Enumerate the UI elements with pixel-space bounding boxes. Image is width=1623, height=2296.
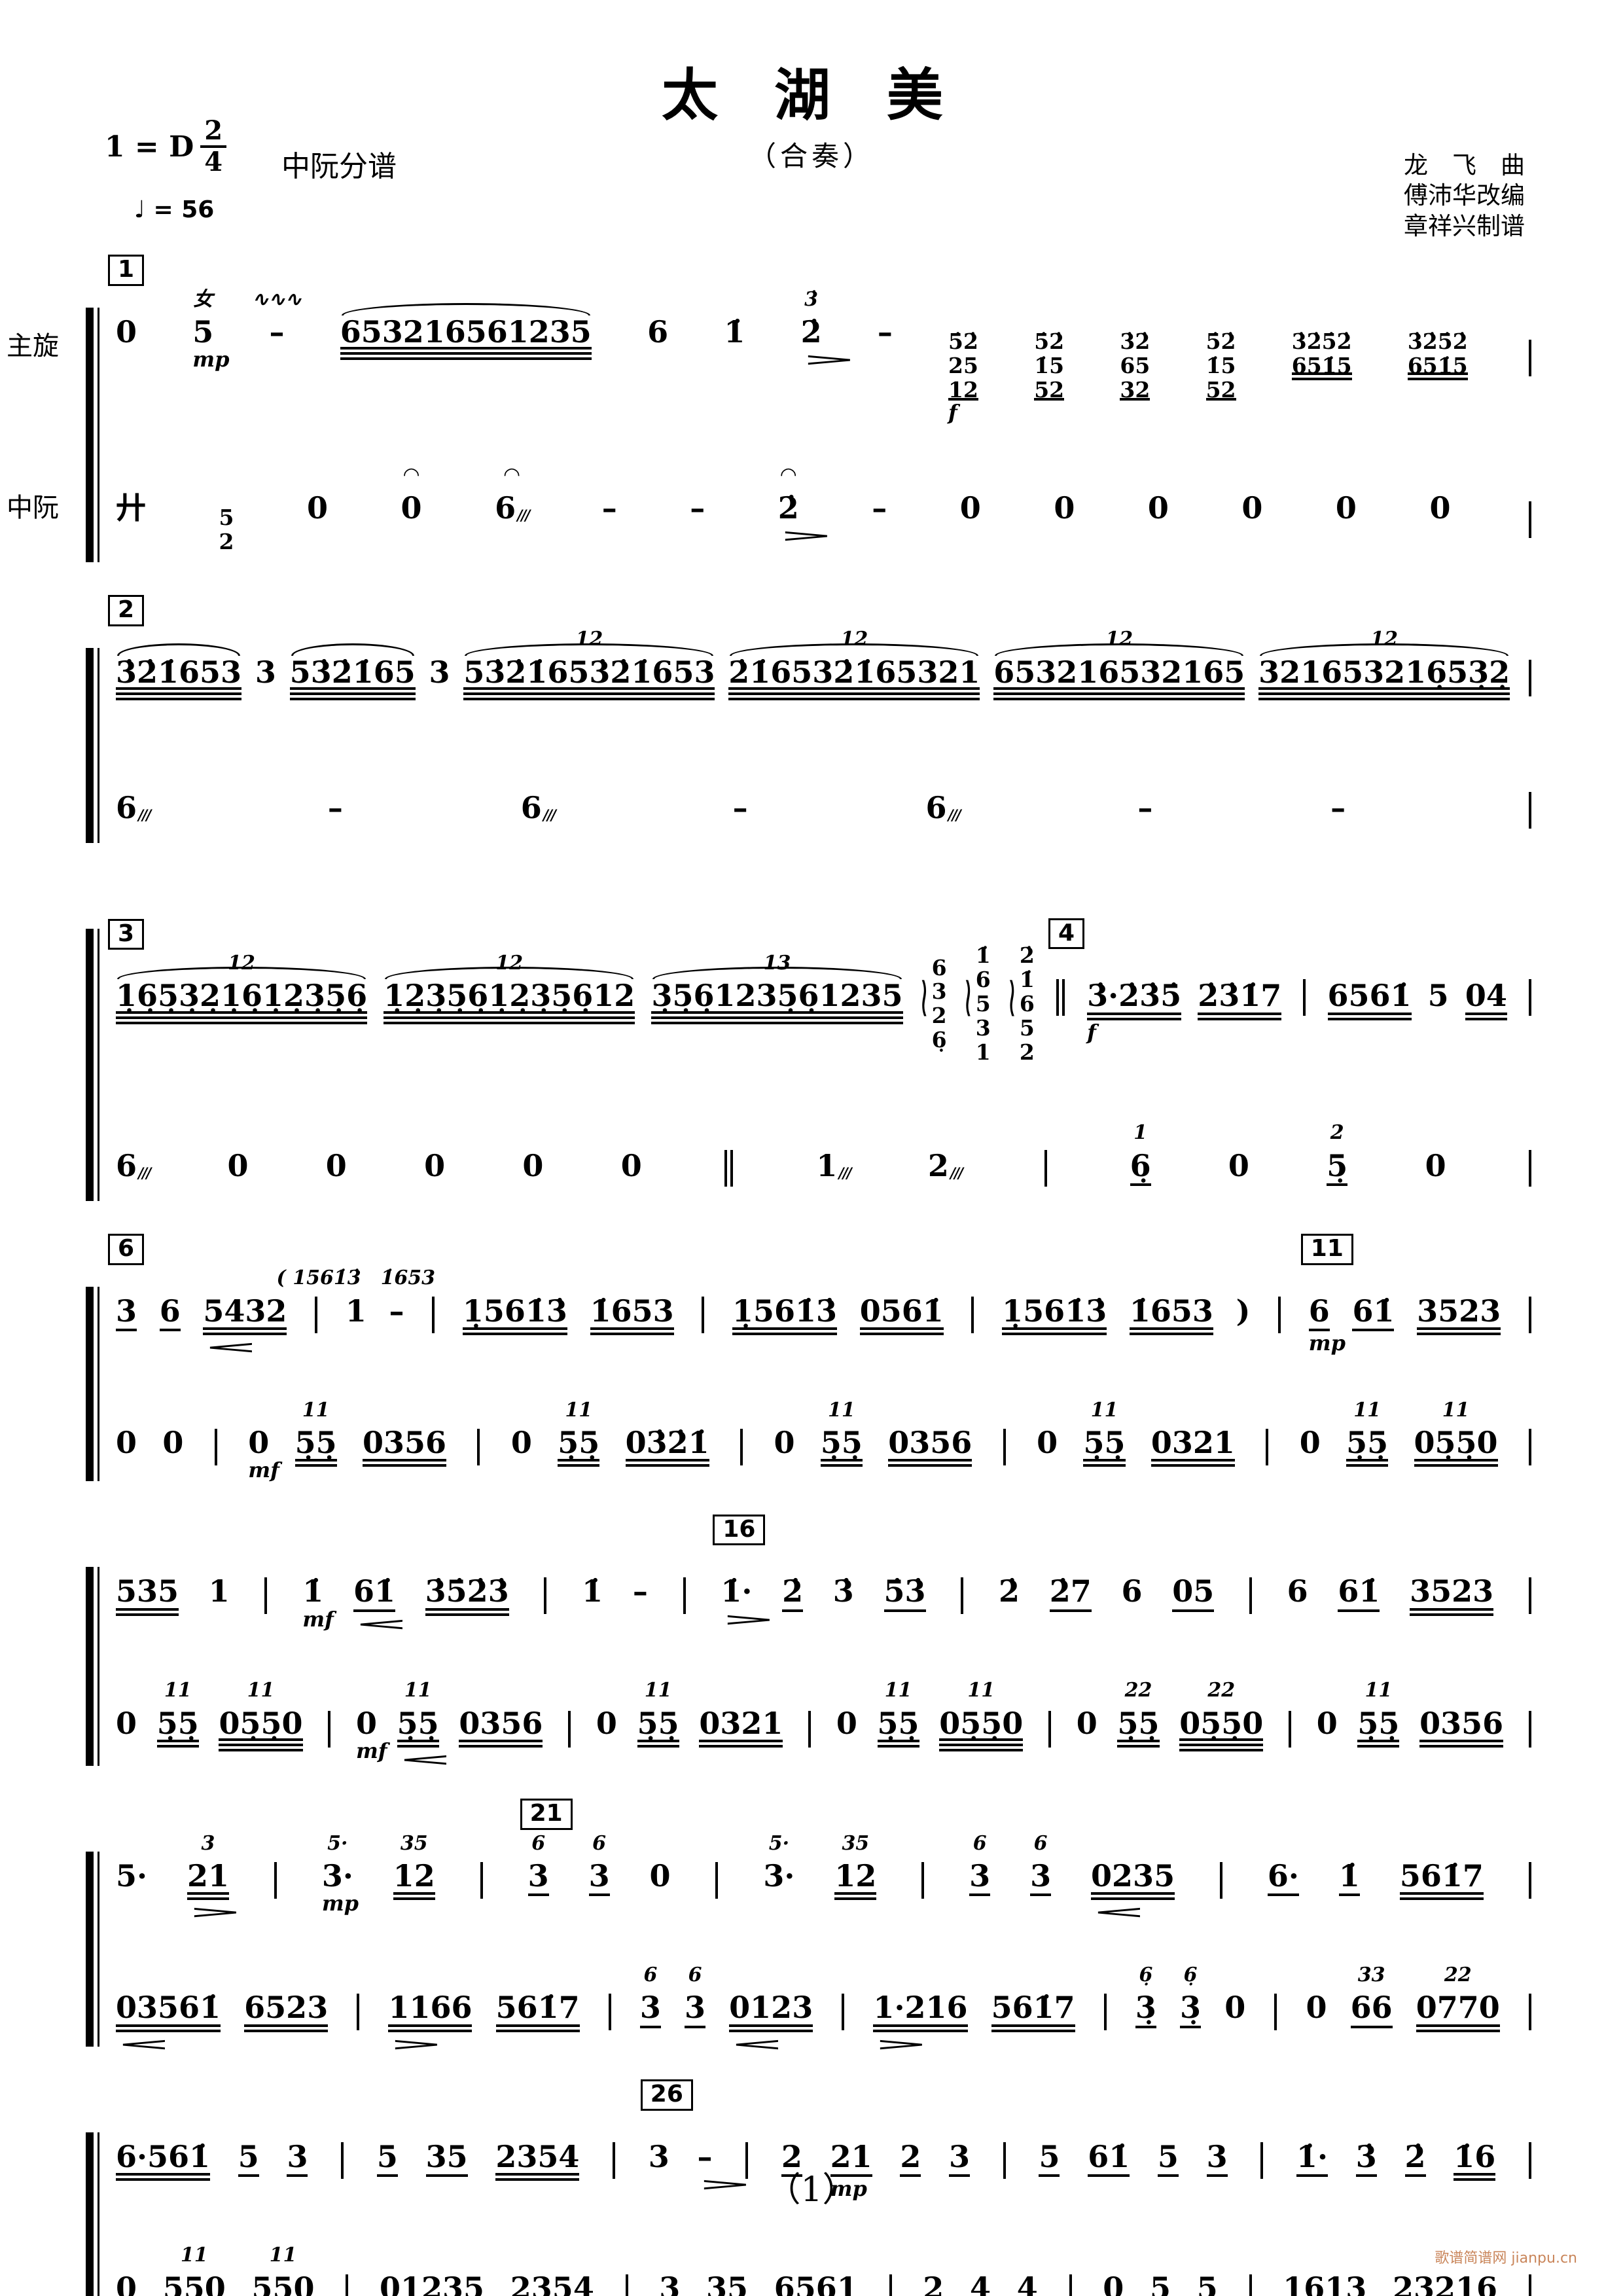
note-text: 3· bbox=[763, 1860, 794, 1892]
credit-line: 章祥兴制谱 bbox=[1404, 211, 1525, 242]
note-token: 1 bbox=[209, 1575, 230, 1607]
note-token: 6 bbox=[160, 1295, 181, 1331]
tremolo-icon: /// bbox=[543, 808, 555, 823]
decrescendo-icon: > bbox=[388, 2036, 444, 2053]
credit-line: 龙 飞 曲 bbox=[1404, 151, 1525, 181]
note-text: 3̣ bbox=[1135, 1992, 1156, 2023]
above-annotation: 12 bbox=[576, 629, 603, 650]
note-token: 1̣2̣3̣5̣6̣1̣2̣3̣5̣6̣1212 bbox=[383, 980, 635, 1024]
chord-note: 3̇2̇ bbox=[1120, 330, 1150, 354]
key-signature: 1 = D 2 4 bbox=[105, 118, 226, 175]
chord-stack: 5̇2̇2512 bbox=[948, 330, 978, 403]
note-token: 53̇2̇1̇65 bbox=[290, 656, 416, 700]
note-text: 2̇ bbox=[782, 1575, 803, 1607]
note-token: 5̇2̇1̇552 bbox=[1206, 323, 1236, 401]
note-text: – bbox=[690, 492, 705, 524]
note-text: 3 bbox=[589, 1860, 610, 1892]
note-token: 廾 bbox=[116, 492, 146, 524]
stave-line: 05̣5̣0115̣5̣01101̣2352354335̣656̣1>2mp4̣… bbox=[108, 2215, 1544, 2296]
chord-stack: 3̇2̇5̇2̇651̇5 bbox=[1292, 330, 1352, 378]
note-token: 5̣5̣11 bbox=[637, 1708, 679, 1748]
note-token: – bbox=[389, 1295, 404, 1327]
note-text: – bbox=[633, 1575, 648, 1607]
note-token: 5̣5̣011 bbox=[163, 2272, 226, 2296]
note-text: 0 bbox=[511, 1427, 532, 1458]
note-text: 53̇2̇1̇65 bbox=[290, 656, 416, 688]
note-text: – bbox=[733, 792, 748, 823]
note-token: 0 bbox=[1077, 1708, 1097, 1739]
note-text: 0 bbox=[522, 1150, 543, 1181]
note-text: 3523 bbox=[1417, 1295, 1501, 1327]
note-text: 3̇2̇1̇653 bbox=[116, 656, 241, 688]
stave-line: 主旋015女mp–∿∿∿65321656123561̇2̇3̇>–5̇2̇251… bbox=[108, 259, 1544, 435]
stave-label: 主旋 bbox=[7, 332, 59, 360]
note-token: 213> bbox=[187, 1860, 229, 1900]
dynamics-marking: > bbox=[873, 2034, 891, 2056]
above-annotation: ∿∿∿ bbox=[252, 289, 301, 310]
note-token: 04 bbox=[1465, 980, 1507, 1020]
note-text: 5̇3̇ bbox=[884, 1575, 926, 1607]
note-token: – bbox=[633, 1575, 648, 1607]
note-text: 0321 bbox=[1151, 1427, 1235, 1458]
note-token: 1̇ bbox=[1339, 1860, 1360, 1896]
above-annotation: 5· bbox=[769, 1833, 789, 1854]
note-token: 0235< bbox=[1091, 1860, 1175, 1900]
above-annotation: 22 bbox=[1125, 1680, 1152, 1701]
note-text: 21 bbox=[187, 1860, 229, 1892]
note-token: 561̇7 bbox=[991, 1992, 1075, 2032]
tremolo-icon: /// bbox=[517, 509, 529, 524]
note-token: 2̇1̇6532̇1̇6532112 bbox=[728, 656, 980, 700]
note-text: – bbox=[270, 316, 285, 348]
note-token: 36 bbox=[969, 1860, 990, 1896]
note-token: ≀1̇6531 bbox=[963, 937, 991, 1058]
barline bbox=[1529, 340, 1531, 376]
sheet-music-page: 太 湖 美 （合奏） 1 = D 2 4 ♩ = 56 中阮分谱 龙 飞 曲傅沛… bbox=[0, 0, 1623, 2296]
note-text: 0 bbox=[960, 492, 981, 524]
barline bbox=[264, 1577, 267, 1614]
barline bbox=[1044, 1150, 1047, 1187]
note-token: 1235 bbox=[834, 1860, 876, 1900]
dynamics-marking: < bbox=[353, 1613, 371, 1636]
above-annotation: 11 bbox=[828, 1400, 855, 1421]
barline bbox=[1529, 1577, 1531, 1614]
barline bbox=[1529, 2274, 1531, 2296]
note-token: 321653216̣53̣2̣12 bbox=[1258, 656, 1510, 700]
above-annotation: 11 bbox=[270, 2245, 297, 2266]
note-text: 5 bbox=[1197, 2272, 1218, 2296]
dynamics-marking: mf bbox=[302, 1609, 334, 1631]
barline bbox=[480, 1862, 483, 1899]
note-text: 3 bbox=[255, 656, 276, 688]
note-token: 0561̇ bbox=[860, 1295, 944, 1335]
chord-stack: 52 bbox=[219, 506, 234, 554]
note-token: 0 bbox=[307, 492, 328, 524]
note-text: 6 bbox=[160, 1295, 181, 1327]
note-text: 1166 bbox=[388, 1992, 472, 2023]
above-annotation: 11 bbox=[967, 1680, 995, 1701]
chord-note: 6 bbox=[976, 968, 991, 992]
note-token: 2̇3̇> bbox=[801, 316, 822, 348]
barline bbox=[1278, 1297, 1281, 1333]
note-token: 3·5· bbox=[763, 1860, 794, 1892]
crescendo-icon: < bbox=[116, 2036, 172, 2053]
chord-note: 25 bbox=[948, 354, 978, 378]
tremolo-icon: /// bbox=[950, 1166, 962, 1181]
note-text: 0 bbox=[1037, 1427, 1058, 1458]
note-token: 0 bbox=[1306, 1992, 1327, 2023]
note-text: 6 bbox=[521, 792, 542, 823]
decrescendo-icon: > bbox=[187, 1904, 243, 1922]
decrescendo-icon: > bbox=[801, 351, 857, 369]
key-signature-text: 1 = D bbox=[105, 130, 194, 164]
note-token: 36 bbox=[685, 1992, 705, 2028]
note-token: 0mf bbox=[356, 1708, 377, 1739]
note-token: 2̇ bbox=[999, 1575, 1020, 1607]
stave-line: 1̣6̣5̣3̣2̣1̣6̣1̣2̣3̣5̣6̣1231̣2̣3̣5̣6̣1̣2… bbox=[108, 880, 1544, 1092]
note-token: 1̇ bbox=[582, 1575, 603, 1607]
note-token: 0 bbox=[1425, 1150, 1446, 1181]
chord-note: 52 bbox=[1206, 378, 1236, 403]
note-token: 5 bbox=[1197, 2272, 1218, 2296]
barline bbox=[1266, 1429, 1268, 1465]
chord-note: 1̇ bbox=[1020, 968, 1035, 992]
note-token: 65321653216512 bbox=[993, 656, 1245, 700]
note-token: 23216̣ bbox=[1393, 2272, 1497, 2296]
note-token: 6̣1 bbox=[1130, 1150, 1151, 1186]
note-text: 5̣5̣ bbox=[1346, 1427, 1388, 1458]
crescendo-icon: < bbox=[353, 1615, 410, 1633]
note-text: 561̇7 bbox=[991, 1992, 1075, 2023]
note-token: – bbox=[1137, 792, 1152, 823]
barline bbox=[961, 1577, 963, 1614]
note-token: 0◠ bbox=[401, 492, 422, 524]
note-text: 66 bbox=[1351, 1992, 1393, 2023]
note-token: 0 bbox=[1228, 1150, 1249, 1181]
note-text: 5̣5̣ bbox=[637, 1708, 679, 1739]
note-token: 0321 bbox=[699, 1708, 783, 1748]
note-text: 1̣561̇3̇ bbox=[1002, 1295, 1107, 1327]
chord-note: 3 bbox=[976, 1016, 991, 1041]
decrescendo-icon: > bbox=[721, 1611, 777, 1628]
dynamics-marking: mp bbox=[1309, 1333, 1346, 1355]
note-token: 3̇·2̇3̇5̇f bbox=[1087, 980, 1181, 1020]
note-token: 0mf bbox=[248, 1427, 269, 1458]
note-token: 5̇3̇ bbox=[884, 1575, 926, 1611]
note-text: 2354 bbox=[510, 2272, 594, 2296]
note-token: 0 bbox=[1336, 492, 1357, 524]
dynamics-marking: mp bbox=[322, 1893, 359, 1915]
note-token: 0 bbox=[227, 1150, 248, 1181]
note-token: 2̇7 bbox=[1050, 1575, 1092, 1611]
note-text: 3 bbox=[1030, 1860, 1051, 1892]
chord-note: 5 bbox=[219, 506, 234, 530]
note-text: 1̇653 bbox=[590, 1295, 674, 1327]
note-token: 5̣5̣11 bbox=[821, 1427, 863, 1467]
part-label: 中阮分谱 bbox=[281, 143, 397, 185]
note-token: 3̣6̣ bbox=[1180, 1992, 1201, 2028]
crescendo-icon: < bbox=[397, 1751, 454, 1768]
barline: 4 bbox=[1056, 979, 1059, 1016]
barline bbox=[357, 1994, 359, 2030]
note-token: 6/// bbox=[116, 1150, 150, 1181]
note-text: 04 bbox=[1465, 980, 1507, 1011]
note-text: 5̣5̣ bbox=[397, 1708, 439, 1739]
dynamics-marking: > bbox=[801, 349, 819, 371]
note-token: 61̇ bbox=[1338, 1575, 1380, 1611]
chord-note: 2 bbox=[1020, 1041, 1035, 1065]
above-annotation: 11 bbox=[885, 1680, 912, 1701]
note-text: 5 bbox=[1150, 2272, 1171, 2296]
note-text: 6 bbox=[1309, 1295, 1330, 1327]
note-token: 5 bbox=[1428, 980, 1449, 1011]
tremolo-icon: /// bbox=[138, 1166, 150, 1181]
note-text: 12 bbox=[834, 1860, 876, 1892]
dynamics-marking: f bbox=[948, 402, 957, 424]
chord-stack: 3̇2̇5̇2̇651̇5 bbox=[1408, 330, 1468, 378]
note-token: 35̣ bbox=[706, 2272, 748, 2296]
note-token: 05̣5̣011 bbox=[219, 1708, 302, 1751]
note-token: 0 bbox=[1241, 492, 1262, 524]
dynamics-marking: < bbox=[1091, 1901, 1109, 1924]
note-token: 077022 bbox=[1416, 1992, 1500, 2032]
barline bbox=[1048, 1711, 1051, 1748]
note-token: 5̇2̇1̇552 bbox=[1034, 323, 1064, 401]
note-text: 0356 bbox=[363, 1427, 446, 1458]
note-text: 0 bbox=[1425, 1150, 1446, 1181]
rehearsal-mark: 1 bbox=[108, 255, 144, 286]
note-text: 3 bbox=[429, 656, 450, 688]
note-text: 5̣5̣ bbox=[1117, 1708, 1159, 1739]
chord-note: 6 bbox=[1020, 992, 1035, 1016]
note-token: 03̇2̇1̇ bbox=[626, 1427, 709, 1467]
note-token: 561̇7 bbox=[1400, 1860, 1484, 1900]
score-subtitle: （合奏） bbox=[0, 134, 1623, 174]
note-text: 0 bbox=[401, 492, 422, 524]
above-annotation: ◠ bbox=[402, 465, 419, 486]
time-signature: 2 4 bbox=[200, 118, 226, 175]
note-token: 6 bbox=[1287, 1575, 1308, 1607]
chord-note: 3̇2̇5̇2̇ bbox=[1408, 330, 1468, 354]
note-token: 0356 bbox=[363, 1427, 446, 1467]
note-token: 3523 bbox=[1410, 1575, 1493, 1615]
note-token: 0 bbox=[1148, 492, 1169, 524]
barline bbox=[1104, 1994, 1107, 2030]
note-token: – bbox=[1330, 792, 1346, 823]
note-text: 2̇7 bbox=[1050, 1575, 1092, 1607]
chord-note: 3̇2̇5̇2̇ bbox=[1292, 330, 1352, 354]
note-text: 1̇ bbox=[724, 316, 745, 348]
note-text: 0 bbox=[1224, 1992, 1245, 2023]
note-token: 1̇·>16 bbox=[721, 1575, 752, 1607]
note-token: 1̣6̣5̣3̣2̣1̣6̣1̣2̣3̣5̣6̣123 bbox=[116, 980, 367, 1024]
chord-note: 5̇2̇ bbox=[948, 330, 978, 354]
barline bbox=[432, 1297, 435, 1333]
stave-label: 中阮 bbox=[7, 494, 59, 522]
note-token: 1̇653 bbox=[590, 1295, 674, 1335]
note-text: 0561̇ bbox=[860, 1295, 944, 1327]
score-system: 3̇2̇1̇6532353̇2̇1̇65353̇2̇1̇653̇2̇1̇6531… bbox=[108, 599, 1544, 863]
note-text: 0 bbox=[1241, 492, 1262, 524]
above-annotation: 35 bbox=[842, 1833, 869, 1854]
note-text: 0235 bbox=[1091, 1860, 1175, 1892]
note-text: 1̣2̣3̣5̣6̣1̣2̣3̣5̣6̣12 bbox=[383, 980, 635, 1011]
note-text: 2̇ bbox=[999, 1575, 1020, 1607]
note-token: 2̇◠> bbox=[778, 492, 799, 524]
arpeggio-icon: ≀ bbox=[919, 967, 929, 1028]
note-text: 0 bbox=[1429, 492, 1450, 524]
barline bbox=[328, 1711, 330, 1748]
above-annotation: 12 bbox=[1370, 629, 1398, 650]
note-text: 1̣561̇3̇ bbox=[463, 1295, 567, 1327]
note-text: 1̇ bbox=[302, 1575, 323, 1607]
note-token: 1̣561̇3̇ bbox=[732, 1295, 837, 1335]
note-text: 0 bbox=[1300, 1427, 1321, 1458]
note-text: 321653216̣53̣2̣ bbox=[1258, 656, 1510, 688]
note-text: 0 bbox=[326, 1150, 347, 1181]
note-token: 4̣ bbox=[1017, 2272, 1038, 2296]
note-token: 01 bbox=[116, 316, 137, 348]
note-token: 6561̇ bbox=[1328, 980, 1412, 1020]
note-token: 3̇2̇6532 bbox=[1120, 323, 1150, 401]
note-token: 5̣5̣11 bbox=[1083, 1427, 1125, 1467]
note-token: 6 bbox=[1121, 1575, 1142, 1607]
note-token: 5̣5̣11 bbox=[157, 1708, 199, 1748]
above-annotation: 5· bbox=[327, 1833, 348, 1854]
note-token: 0 bbox=[650, 1860, 671, 1892]
note-text: 2 bbox=[923, 2272, 944, 2296]
note-token: 1166> bbox=[388, 1992, 472, 2032]
note-token: 2mp bbox=[923, 2272, 944, 2296]
chord-note: 3 bbox=[932, 980, 947, 1004]
note-text: 35̣ bbox=[706, 2272, 748, 2296]
note-text: 0 bbox=[621, 1150, 642, 1181]
stave-line: 5·213>3·5·mp123536213603·5·123536360235<… bbox=[108, 1803, 1544, 1934]
note-token: 6633 bbox=[1351, 1992, 1393, 2028]
note-token: 0356 bbox=[1419, 1708, 1503, 1748]
rehearsal-mark: 6 bbox=[108, 1234, 144, 1265]
note-token: 0 bbox=[424, 1150, 445, 1181]
arpeggio-icon: ≀ bbox=[963, 967, 973, 1028]
watermark: 歌谱简谱网 jianpu.cn bbox=[1435, 2246, 1577, 2267]
note-text: 05̣5̣0 bbox=[939, 1708, 1023, 1739]
note-text: 0 bbox=[1077, 1708, 1097, 1739]
above-annotation: 6̣ bbox=[1184, 1965, 1198, 1986]
above-annotation: 35 bbox=[401, 1833, 428, 1854]
dynamics-marking: > bbox=[388, 2034, 406, 2056]
above-annotation: 6 bbox=[531, 1833, 545, 1854]
note-token: 61̇ bbox=[1352, 1295, 1394, 1331]
dynamics-marking: < bbox=[397, 1749, 415, 1771]
note-token: 6/// bbox=[925, 792, 959, 823]
note-text: 535 bbox=[116, 1575, 179, 1607]
chord-note: 52 bbox=[1034, 378, 1064, 403]
score-body: 主旋015女mp–∿∿∿65321656123561̇2̇3̇>–5̇2̇251… bbox=[0, 252, 1623, 2296]
credit-line: 傅沛华改编 bbox=[1404, 181, 1525, 211]
note-text: 6 bbox=[647, 316, 668, 348]
note-token: 1̣561̇3̇ bbox=[1002, 1295, 1107, 1335]
note-text: 4̣ bbox=[1017, 2272, 1038, 2296]
note-token: 0 bbox=[1103, 2272, 1124, 2296]
note-text: 4̣ bbox=[970, 2272, 991, 2296]
note-text: 5̣5̣0 bbox=[163, 2272, 226, 2296]
above-annotation: 11 bbox=[645, 1680, 672, 1701]
barline bbox=[1529, 660, 1531, 696]
rehearsal-mark: 3 bbox=[108, 919, 144, 950]
note-text: 05̣5̣0 bbox=[219, 1708, 302, 1739]
chord-note: 651̇5 bbox=[1292, 354, 1352, 378]
note-token: 0 bbox=[774, 1427, 794, 1458]
barline bbox=[808, 1711, 811, 1748]
note-text: 3 bbox=[116, 1295, 137, 1327]
note-token: 6mp11 bbox=[1309, 1295, 1330, 1331]
above-annotation: 6 bbox=[643, 1965, 657, 1986]
time-signature-numerator: 2 bbox=[200, 118, 226, 148]
chord-stack: 5̇2̇1̇552 bbox=[1034, 330, 1064, 403]
note-text: 0 bbox=[116, 1427, 137, 1458]
tremolo-icon: /// bbox=[138, 808, 150, 823]
note-text: 53̇2̇1̇653̇2̇1̇653 bbox=[463, 656, 715, 688]
above-annotation: 11 bbox=[1353, 1400, 1381, 1421]
note-text: – bbox=[878, 316, 893, 348]
page-title: 太 湖 美 bbox=[0, 49, 1623, 131]
note-text: 0 bbox=[1336, 492, 1357, 524]
score-system: 53511̇mf61̇<3̇5̇2̇3̇1̇–1̇·>162̇3̇5̇3̇2̇2… bbox=[108, 1518, 1544, 1785]
note-token: 0 bbox=[836, 1708, 857, 1739]
above-annotation: 6 bbox=[1034, 1833, 1048, 1854]
tremolo-icon: /// bbox=[948, 808, 959, 823]
chord-stack: 3̇2̇6532 bbox=[1120, 330, 1150, 403]
above-annotation: 22 bbox=[1444, 1965, 1472, 1986]
stave-line: 03561̇<65231166>561̇736360123<1·216>561̇… bbox=[108, 1934, 1544, 2066]
barline bbox=[1249, 2274, 1252, 2296]
note-text: – bbox=[1330, 792, 1346, 823]
chord-note: 12 bbox=[948, 378, 978, 403]
note-token: – bbox=[328, 792, 343, 823]
note-text: 3 bbox=[640, 1992, 661, 2023]
note-token: 05̣5̣011 bbox=[1414, 1427, 1498, 1467]
stave-line: 05̣5̣1105̣5̣0110mf5̣5̣11<035605̣5̣110321… bbox=[108, 1650, 1544, 1785]
stave-line: 6///–6///–6///–– bbox=[108, 734, 1544, 863]
note-token: 52 bbox=[219, 499, 234, 548]
above-annotation: 11 bbox=[1091, 1400, 1118, 1421]
note-text: 5̣5̣ bbox=[157, 1708, 199, 1739]
note-text: 1613 bbox=[1283, 2272, 1366, 2296]
note-text: 5̣5̣ bbox=[558, 1427, 599, 1458]
note-token: 3̇2̇5̇2̇651̇5 bbox=[1292, 323, 1352, 380]
dynamics-marking: > bbox=[721, 1609, 738, 1631]
note-text: 0 bbox=[162, 1427, 183, 1458]
barline bbox=[842, 1994, 844, 2030]
above-annotation: 12 bbox=[228, 953, 255, 974]
note-token: 3̣5̣6̣1235̣6̣123513 bbox=[651, 980, 902, 1024]
dynamics-marking: mp bbox=[192, 349, 229, 371]
score-system: 3665432<1( 1561̇3̇ 1̇653–1̣561̇3̇1̇6531̣… bbox=[108, 1238, 1544, 1501]
above-annotation: 2 bbox=[1330, 1122, 1344, 1143]
above-annotation: 6 bbox=[973, 1833, 987, 1854]
above-annotation: 11 bbox=[1365, 1680, 1393, 1701]
note-token: 1̇mf bbox=[302, 1575, 323, 1607]
note-token: ≀2̇1̇652 bbox=[1007, 937, 1035, 1058]
crescendo-icon: < bbox=[1091, 1904, 1147, 1922]
above-annotation: 11 bbox=[164, 1680, 192, 1701]
note-text: 3 bbox=[685, 1992, 705, 2023]
note-text: 0 bbox=[1317, 1708, 1338, 1739]
note-text: 0 bbox=[116, 2272, 137, 2296]
note-text: 0 bbox=[1306, 1992, 1327, 2023]
note-text: 2̇ bbox=[778, 492, 799, 524]
note-text: 6523 bbox=[244, 1992, 328, 2023]
